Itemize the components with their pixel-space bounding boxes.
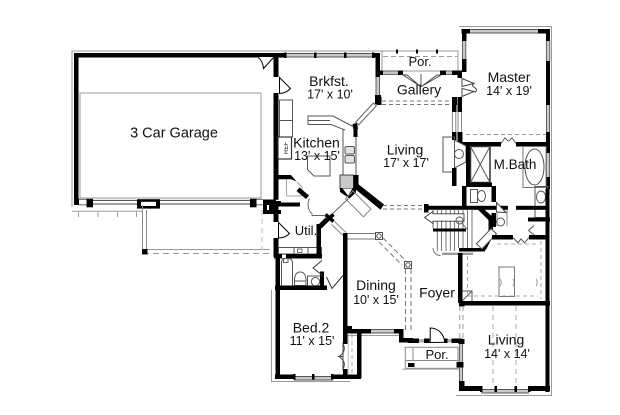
svg-text:Util.: Util.: [295, 223, 317, 238]
svg-text:Por.: Por.: [408, 54, 431, 69]
svg-text:REF: REF: [284, 142, 290, 154]
svg-text:14' x 14': 14' x 14': [484, 347, 530, 361]
svg-text:M.Bath: M.Bath: [494, 157, 537, 172]
svg-text:Brkfst.: Brkfst.: [309, 73, 349, 89]
svg-text:Dining: Dining: [356, 277, 396, 293]
svg-text:17' x 10': 17' x 10': [307, 88, 353, 102]
svg-text:Foyer: Foyer: [419, 285, 455, 301]
svg-text:11' x 15': 11' x 15': [290, 334, 335, 348]
svg-text:Gallery: Gallery: [397, 82, 441, 98]
svg-text:10' x 15': 10' x 15': [353, 293, 399, 307]
svg-text:14' x 19': 14' x 19': [486, 84, 532, 98]
svg-text:Por.: Por.: [425, 347, 448, 362]
svg-text:13' x 15': 13' x 15': [294, 149, 340, 163]
svg-text:Master: Master: [488, 69, 531, 85]
svg-text:Living: Living: [488, 332, 525, 348]
svg-text:17' x 17': 17' x 17': [383, 156, 429, 170]
svg-text:3 Car Garage: 3 Car Garage: [130, 125, 218, 141]
